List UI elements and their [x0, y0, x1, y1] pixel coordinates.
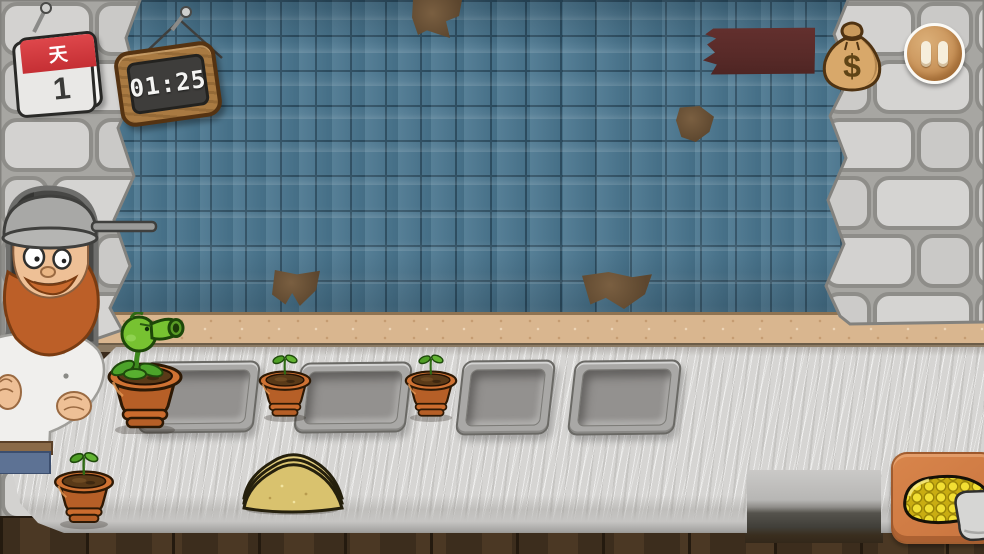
game-screen: 天 1 01:25 $: [0, 0, 984, 554]
pot-sprout-3[interactable]: [44, 432, 124, 532]
money-bag-icon: $: [815, 20, 889, 92]
currency-symbol: $: [843, 48, 861, 84]
pot-helmet-icon: [3, 228, 97, 248]
pause-button[interactable]: [904, 23, 965, 84]
calendar-day: 1: [23, 66, 101, 112]
pot-peashooter[interactable]: [95, 312, 195, 434]
pot-sprout-1[interactable]: [250, 330, 320, 430]
hanging-banner: [703, 26, 815, 75]
corn-card[interactable]: [891, 452, 984, 544]
pause-icon: [921, 41, 931, 67]
timer-value: 01:25: [126, 53, 210, 115]
tray-slot-3[interactable]: [455, 360, 557, 436]
calendar-day-indicator: 天 1: [16, 30, 104, 115]
pause-icon: [938, 41, 948, 67]
nail-icon: [26, 0, 56, 36]
timer-sign: 01:25: [112, 39, 224, 128]
pot-sprout-2[interactable]: [396, 330, 466, 430]
dough-pile[interactable]: [236, 450, 348, 516]
cleaver-icon: [948, 480, 984, 552]
tray-slot-4[interactable]: [567, 359, 683, 435]
